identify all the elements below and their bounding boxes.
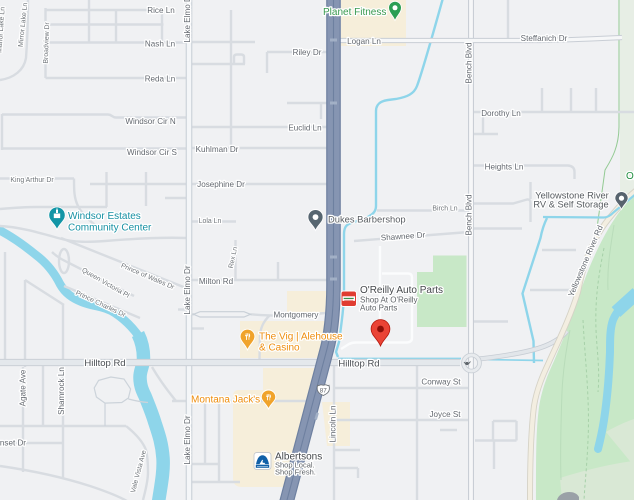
svg-text:O'Reilly Auto Parts: O'Reilly Auto Parts xyxy=(360,285,443,296)
svg-text:Shop Fresh.: Shop Fresh. xyxy=(275,468,316,477)
svg-text:Community Center: Community Center xyxy=(68,223,152,234)
svg-text:Josephine Dr: Josephine Dr xyxy=(197,180,245,189)
svg-text:Montana Jack's: Montana Jack's xyxy=(191,395,260,406)
svg-text:Rice Ln: Rice Ln xyxy=(147,6,174,15)
svg-text:Heights Ln: Heights Ln xyxy=(485,163,524,172)
svg-text:87: 87 xyxy=(320,387,328,394)
svg-text:Nash Ln: Nash Ln xyxy=(145,40,175,49)
svg-text:Dukes Barbershop: Dukes Barbershop xyxy=(328,214,406,225)
svg-text:Oh: Oh xyxy=(626,171,634,182)
svg-text:Montgomery: Montgomery xyxy=(274,311,320,320)
svg-text:Lake Elmo Dr: Lake Elmo Dr xyxy=(183,415,192,464)
svg-text:Windsor Estates: Windsor Estates xyxy=(68,211,141,222)
svg-text:Bench Blvd: Bench Blvd xyxy=(465,43,474,84)
svg-text:& Casino: & Casino xyxy=(259,343,300,354)
svg-text:Conway St: Conway St xyxy=(421,378,461,387)
svg-text:Steffanich Dr: Steffanich Dr xyxy=(521,34,568,43)
svg-text:King Arthur Dr: King Arthur Dr xyxy=(10,177,54,184)
svg-text:Lincoln Ln: Lincoln Ln xyxy=(329,406,338,443)
svg-text:Auto Parts: Auto Parts xyxy=(360,304,397,313)
svg-text:Lake Elmo Dr: Lake Elmo Dr xyxy=(183,265,192,314)
svg-text:Birch Ln: Birch Ln xyxy=(432,206,457,213)
svg-text:Hilltop Rd: Hilltop Rd xyxy=(84,358,125,369)
svg-text:RV & Self Storage: RV & Self Storage xyxy=(533,200,608,210)
svg-text:Bench Blvd: Bench Blvd xyxy=(465,195,474,236)
svg-text:Joyce St: Joyce St xyxy=(429,410,461,419)
svg-text:Euclid Ln: Euclid Ln xyxy=(288,124,321,133)
svg-text:Agate Ave: Agate Ave xyxy=(19,369,28,406)
svg-text:Hilltop Rd: Hilltop Rd xyxy=(338,359,379,370)
svg-text:Lake Elmo Dr: Lake Elmo Dr xyxy=(183,0,192,43)
svg-text:Milton Rd: Milton Rd xyxy=(199,277,233,286)
svg-text:Windsor Cir N: Windsor Cir N xyxy=(125,117,176,126)
svg-text:Shamrock Ln: Shamrock Ln xyxy=(57,367,66,415)
svg-text:Kuhlman Dr: Kuhlman Dr xyxy=(196,145,239,154)
svg-text:Dorothy Ln: Dorothy Ln xyxy=(481,109,521,118)
svg-text:Lola Ln: Lola Ln xyxy=(199,218,222,225)
svg-text:Sunset Dr: Sunset Dr xyxy=(0,439,26,448)
svg-text:Planet Fitness: Planet Fitness xyxy=(323,7,386,18)
svg-text:Broadview Dr: Broadview Dr xyxy=(43,21,51,63)
svg-text:Riley Dr: Riley Dr xyxy=(293,48,322,57)
svg-text:The Vig | Alehouse: The Vig | Alehouse xyxy=(259,332,343,343)
svg-text:Logan Ln: Logan Ln xyxy=(347,37,381,46)
svg-text:Windsor Cir S: Windsor Cir S xyxy=(127,148,178,157)
svg-text:Reda Ln: Reda Ln xyxy=(145,75,176,84)
